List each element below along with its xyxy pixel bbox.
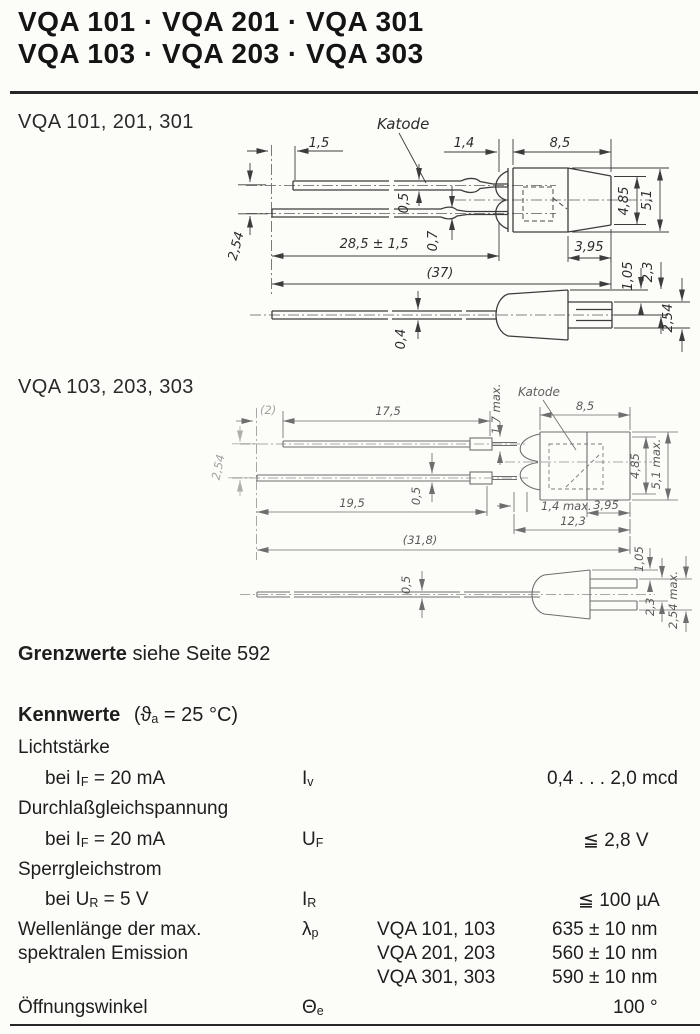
row-lichtstaerke-symbol: Iv <box>302 768 314 790</box>
row-wellen-types-2: VQA 201, 203 <box>377 943 495 965</box>
d2-dim-dome-depth: 1,4 max. <box>541 499 592 513</box>
kennwerte-condition: (ϑa = 25 °C) <box>134 704 238 726</box>
row-durchlass-value: ≦ 2,8 V <box>583 829 649 852</box>
datasheet-page: { "header": { "title_line1": "VQA 101 · … <box>0 0 700 1034</box>
row-winkel-param: Öffnungswinkel <box>18 997 148 1019</box>
d2-dim-lead-thickness: 0,5 <box>409 487 423 505</box>
d1-dim-step-1: 1,05 <box>621 262 636 291</box>
row-lichtstaerke-condition: bei IF = 20 mA <box>45 768 165 790</box>
row-wellen-param-line1: Wellenlänge der max. <box>18 919 201 941</box>
row-sperr-param: Sperrgleichstrom <box>18 859 162 881</box>
drawing2-label: VQA 103, 203, 303 <box>18 376 194 399</box>
d2-dim-front-length: 3,95 <box>593 498 619 512</box>
d1-dim-lead-thickness-top: 0,5 <box>397 193 412 214</box>
d2-dimensions: (2) 17,5 1,7 max. Katode 8,5 2,54 19,5 0… <box>209 384 678 554</box>
d1-dim-side-lead-thickness: 0,4 <box>394 329 409 350</box>
kennwerte-heading-line: Kennwerte (ϑa = 25 °C) <box>18 704 238 727</box>
row-wellen-value-3: 590 ± 10 nm <box>552 967 658 989</box>
d1-dim-lead-thickness-bottom: 0,7 <box>426 230 441 251</box>
page-title-line1: VQA 101 · VQA 201 · VQA 301 <box>18 6 424 38</box>
row-sperr-condition: bei UR = 5 V <box>45 889 149 911</box>
d1-dim-dia-inner: 4,85 <box>617 187 632 216</box>
d1-dim-lead-pitch: 2,54 <box>226 230 248 262</box>
d2-dim-body-length: 8,5 <box>576 399 594 413</box>
header-rule <box>10 91 698 94</box>
d2-dim-step-1: 1,05 <box>632 546 646 572</box>
row-wellen-value-1: 635 ± 10 nm <box>552 919 658 941</box>
drawing1-technical-drawing: 1,5 2,54 Katode 1,4 8,5 0,5 0,7 28,5 ± 1… <box>225 105 700 370</box>
d1-dim-lead-offset: 1,5 <box>309 136 330 151</box>
d1-side-view: 0,4 1,05 2,3 2,54 <box>250 262 690 352</box>
row-durchlass-param: Durchlaßgleichspannung <box>18 798 228 820</box>
d2-dim-total-length: (31,8) <box>403 533 438 547</box>
row-sperr-symbol: IR <box>302 889 316 911</box>
d2-dim-lead-pitch: 2,54 <box>209 453 228 481</box>
row-wellen-types-1: VQA 101, 103 <box>377 919 495 941</box>
d1-dim-total-length: (37) <box>427 266 454 281</box>
d2-dim-body-total: 12,3 <box>560 514 586 528</box>
grenzwerte-heading: Grenzwerte <box>18 643 127 665</box>
grenzwerte-rest: siehe Seite 592 <box>127 643 270 665</box>
drawing1-label: VQA 101, 201, 301 <box>18 111 194 134</box>
d2-side-view: 0,5 1,05 2,3 2,54 max. <box>240 546 692 632</box>
row-wellen-symbol: λp <box>302 919 318 941</box>
d2-katode-label: Katode <box>518 385 560 399</box>
grenzwerte-line: Grenzwerte siehe Seite 592 <box>18 643 270 666</box>
d2-body <box>540 432 630 500</box>
kennwerte-heading: Kennwerte <box>18 704 120 726</box>
d1-chip-hidden-outline <box>523 187 567 221</box>
d1-dim-dia-outer: 5,1 <box>640 190 655 211</box>
d2-dim-dia-inner: 4,85 <box>628 453 642 479</box>
row-wellen-param-line2: spektralen Emission <box>18 943 188 965</box>
d2-dim-collar: 1,7 max. <box>489 384 503 435</box>
page-title-line2: VQA 103 · VQA 203 · VQA 303 <box>18 38 424 70</box>
d1-dim-front-length: 3,95 <box>575 240 604 255</box>
d2-dim-dia-outer: 5,1 max. <box>649 439 663 490</box>
row-durchlass-symbol: UF <box>302 829 323 851</box>
d2-top-view <box>232 408 652 560</box>
d1-katode-label: Katode <box>377 115 429 133</box>
d1-dim-lead-length: 28,5 ± 1,5 <box>340 237 409 252</box>
row-sperr-value: ≦ 100 µA <box>578 889 660 912</box>
d1-dimensions: 1,5 2,54 Katode 1,4 8,5 0,5 0,7 28,5 ± 1… <box>226 115 669 295</box>
row-durchlass-condition: bei IF = 20 mA <box>45 829 165 851</box>
d1-dim-side-pitch: 2,54 <box>661 304 676 333</box>
d2-dim-side-lead-thickness: 0,5 <box>399 576 413 594</box>
row-lichtstaerke-value: 0,4 . . . 2,0 mcd <box>547 768 678 790</box>
d1-dim-step-2: 2,3 <box>641 262 656 283</box>
d2-chip-hidden-outline <box>549 444 603 489</box>
d2-dim-side-pitch: 2,54 max. <box>666 571 680 629</box>
row-wellen-types-3: VQA 301, 303 <box>377 967 495 989</box>
d1-top-view <box>246 168 652 232</box>
row-lichtstaerke-param: Lichtstärke <box>18 737 110 759</box>
d2-dim-lead-offset: (2) <box>260 403 276 417</box>
row-winkel-value: 100 ° <box>613 997 658 1019</box>
d2-dim-step-2: 2,3 <box>643 598 657 616</box>
d2-dim-lead-length-bottom: 19,5 <box>339 496 365 510</box>
row-wellen-value-2: 560 ± 10 nm <box>552 943 658 965</box>
row-winkel-symbol: Θe <box>302 997 324 1019</box>
d2-dim-lead-length-top: 17,5 <box>375 404 401 418</box>
d1-dim-dome-depth: 1,4 <box>454 136 475 151</box>
drawing2-technical-drawing: (2) 17,5 1,7 max. Katode 8,5 2,54 19,5 0… <box>212 378 700 640</box>
d1-dim-body-length: 8,5 <box>550 136 571 151</box>
footer-rule <box>10 1024 700 1026</box>
